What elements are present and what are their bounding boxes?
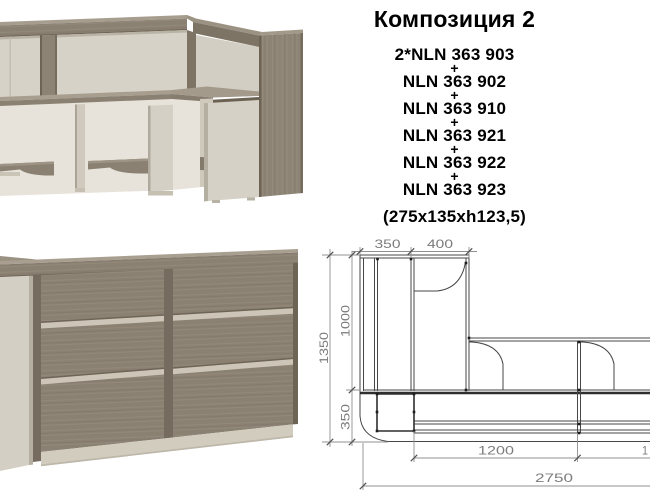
- catalog-page: Композиция 2 2*NLN 363 903 + NLN 363 902…: [0, 0, 650, 500]
- underdesk-interior: [0, 95, 213, 196]
- left-end-panel: [0, 276, 33, 471]
- plan-drawing: 350 400 1350 1000 350 1200 1 2750: [315, 230, 650, 500]
- overall-dimensions: (275x135xh123,5): [332, 207, 577, 227]
- corner-column: [187, 30, 196, 92]
- plan-dim-top-350: 350: [375, 237, 401, 251]
- product-image-front-view: [0, 240, 315, 492]
- front-panel-1: [41, 269, 164, 452]
- plan-dimensions: 350 400 1350 1000 350 1200 1 2750: [317, 237, 650, 490]
- corner-tower-side: [259, 33, 303, 197]
- component-item: NLN 363 923: [332, 181, 577, 199]
- right-end-edge: [293, 263, 298, 425]
- plan-dim-bottom-clipped: 1: [642, 444, 648, 458]
- plan-dim-top-400: 400: [427, 237, 453, 251]
- front-stile: [164, 269, 173, 439]
- shelf-divider-column: [40, 35, 57, 99]
- composition-info: Композиция 2 2*NLN 363 903 + NLN 363 902…: [332, 5, 577, 227]
- upper-back-panels: [0, 30, 187, 101]
- front-panel-2: [173, 263, 293, 438]
- plan-dim-left-1000: 1000: [339, 305, 353, 337]
- plan-dim-left-350: 350: [339, 404, 353, 430]
- plan-dim-left-1350: 1350: [317, 332, 331, 364]
- corner-front-panel: [204, 100, 259, 203]
- plan-dim-bottom-1200: 1200: [478, 444, 514, 458]
- plan-outline: [360, 255, 650, 442]
- composition-title: Композиция 2: [332, 5, 577, 33]
- plan-dim-total-2750: 2750: [535, 471, 573, 485]
- product-image-back-view: [0, 0, 330, 232]
- front-stile: [33, 275, 41, 462]
- fastener-dots: [376, 258, 581, 435]
